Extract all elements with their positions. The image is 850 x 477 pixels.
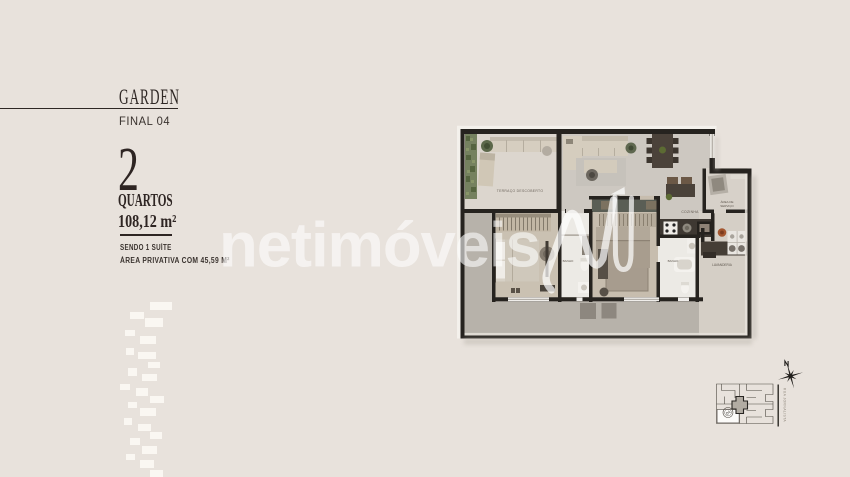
svg-text:BANHO: BANHO [563,259,574,263]
svg-text:SERVIÇO: SERVIÇO [720,204,734,208]
svg-text:TERRAÇO DESCOBERTO: TERRAÇO DESCOBERTO [497,189,544,193]
svg-text:COZINHA: COZINHA [681,210,699,214]
svg-text:RUA JORNALISTA: RUA JORNALISTA [783,388,787,423]
svg-text:netimóveis: netimóveis [219,211,540,281]
svg-text:LAVANDERIA: LAVANDERIA [712,263,733,267]
svg-text:BANHO: BANHO [668,259,679,263]
